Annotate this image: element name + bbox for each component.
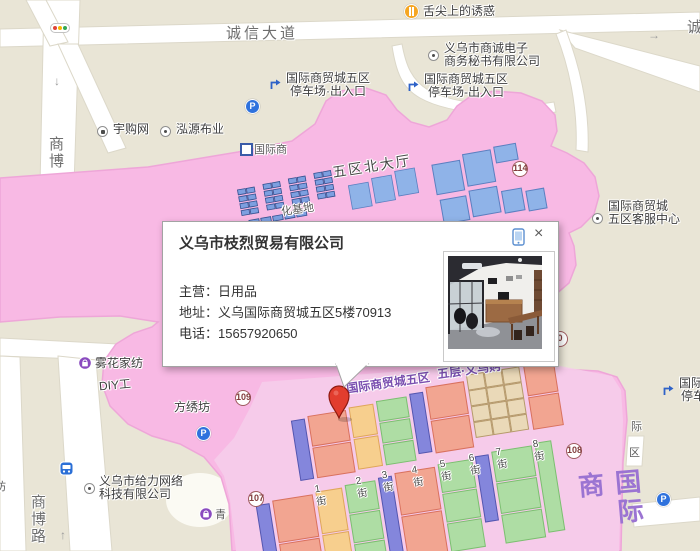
poi-xiufang-label: 方绣坊 <box>174 401 210 414</box>
street-label-3: 3街 <box>378 469 391 493</box>
poi-dot-icon <box>428 50 439 61</box>
north-hall-label: 五区北大厅 <box>331 154 412 179</box>
popup-phone: 电话：15657920650 <box>179 323 298 342</box>
business-photo[interactable] <box>443 251 555 362</box>
arrow-up: ↑ <box>60 528 66 542</box>
popup-main-business: 主营：日用品 <box>179 281 257 300</box>
road-number-114: 114 <box>512 161 528 177</box>
mobile-phone-icon[interactable] <box>512 228 525 246</box>
close-icon[interactable]: × <box>534 226 543 242</box>
poi-dot-icon-service[interactable] <box>592 211 603 229</box>
service-center-label2: 五区客服中心 <box>608 213 680 226</box>
parking-entrance-icon-edge[interactable] <box>661 383 675 397</box>
map-canvas[interactable]: ↓ 诚信大道 诚 → 舌尖上的诱惑 义乌市商诚电子 商务秘书有限公司 国际商贸城… <box>0 0 700 551</box>
poi-yugou-label: 宇购网 <box>113 123 149 136</box>
street-label-6: 6街 <box>465 452 478 476</box>
shop-icon-yugou[interactable] <box>97 124 108 142</box>
big-market-label: 国际商 <box>571 467 652 551</box>
road-label-chengxin: 诚信大道 <box>226 22 298 43</box>
poi-food-label: 舌尖上的诱惑 <box>423 5 495 18</box>
street-label-2: 2街 <box>352 475 365 499</box>
popup-address: 地址：义乌国际商贸城五区5楼70913 <box>179 302 391 321</box>
base-fragment-label: 化基地 <box>280 199 315 219</box>
bag-icon-wuhua[interactable] <box>78 356 92 370</box>
bag-icon-qing[interactable] <box>199 507 213 521</box>
poi-diy-label: DIY工 <box>98 378 131 394</box>
food-icon <box>404 4 419 19</box>
popup-title: 义乌市枝烈贸易有限公司 <box>179 232 344 253</box>
traffic-light-icon <box>50 23 70 33</box>
parking-entrance-icon-left[interactable] <box>268 77 282 91</box>
parking-left-label2: 停车场·出入口 <box>290 85 366 98</box>
poi-ecommerce[interactable] <box>428 48 439 66</box>
info-popup: 义乌市枝烈贸易有限公司 主营：日用品 地址：义乌国际商贸城五区5楼70913 电… <box>162 221 559 367</box>
poi-hongyuan-label: 泓源布业 <box>176 123 224 136</box>
map-marker-pin[interactable] <box>324 384 356 424</box>
arrow-right: → <box>648 28 660 42</box>
road-label-shangbo-road: 商博路 <box>27 494 48 545</box>
poi-dot-icon-geili[interactable] <box>84 481 95 499</box>
poi-wuhua-label: 雾花家纺 <box>95 357 143 370</box>
road-number-107: 107 <box>248 491 264 507</box>
photo-scene <box>448 256 542 349</box>
parking-p-icon-mid[interactable]: P <box>196 426 211 441</box>
arrow-down: ↓ <box>54 74 60 88</box>
fang-fragment-label: 坊 <box>0 478 6 494</box>
road-label-shangbo: 商博 <box>45 136 66 170</box>
street-label-4: 4街 <box>408 464 421 488</box>
trade-fragment-label: 国际商 <box>254 141 287 157</box>
street-label-1: 1街 <box>311 483 324 507</box>
poi-food[interactable]: 舌尖上的诱惑 <box>404 4 495 19</box>
parking-edge-label2: 停车 <box>681 390 700 403</box>
metro-square-icon <box>240 143 253 161</box>
qu-fragment-label: 区 <box>629 444 640 460</box>
poi-qing-label: 青 <box>215 506 226 522</box>
parking-p-icon-bottom[interactable]: P <box>656 492 671 507</box>
street-label-7: 7街 <box>492 446 505 470</box>
poi-dot-icon-hongyuan[interactable] <box>160 124 171 142</box>
poi-ecommerce-label2: 商务秘书有限公司 <box>444 55 540 68</box>
road-number-108: 108 <box>566 443 582 459</box>
road-label-chengxin-partial: 诚 <box>687 16 700 37</box>
bus-icon[interactable] <box>59 461 74 476</box>
popup-tail <box>328 363 372 389</box>
parking-entrance-icon-right[interactable] <box>406 79 420 93</box>
poi-geili-label2: 科技有限公司 <box>99 488 171 501</box>
street-label-8: 8街 <box>529 438 542 462</box>
parking-p-icon-top[interactable]: P <box>245 99 260 114</box>
road-number-109: 109 <box>235 390 251 406</box>
parking-right-label2: 停车场-出入口 <box>428 86 504 99</box>
ji-fragment-label: 际 <box>631 418 642 434</box>
street-label-5: 5街 <box>436 458 449 482</box>
